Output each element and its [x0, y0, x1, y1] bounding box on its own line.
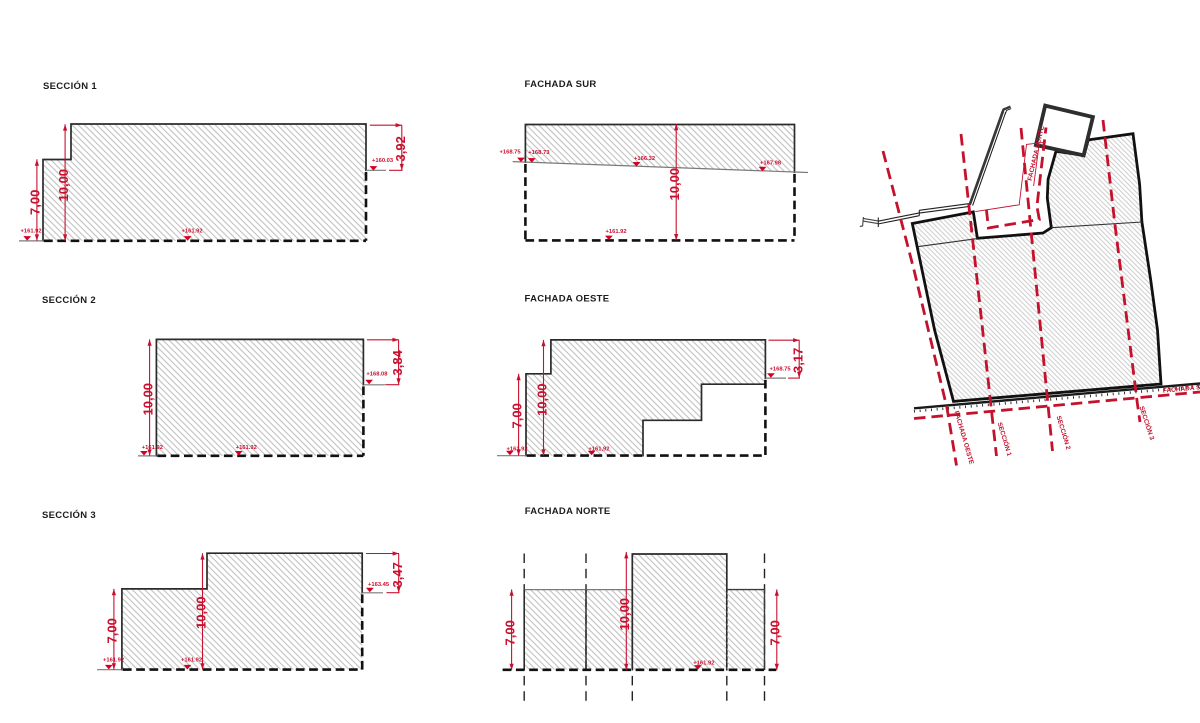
svg-text:3,47: 3,47 — [390, 562, 405, 587]
svg-text:10,00: 10,00 — [56, 169, 71, 202]
svg-text:+168.75: +168.75 — [500, 150, 522, 156]
svg-text:+168.75: +168.75 — [770, 366, 792, 372]
svg-text:+168.73: +168.73 — [528, 150, 550, 156]
svg-text:SECCIÓN 3: SECCIÓN 3 — [42, 509, 96, 521]
svg-text:+161.92: +161.92 — [236, 445, 257, 451]
svg-text:7,00: 7,00 — [28, 190, 43, 215]
svg-text:10,00: 10,00 — [617, 598, 632, 631]
svg-text:10,00: 10,00 — [534, 383, 549, 416]
svg-text:10,00: 10,00 — [667, 168, 682, 201]
svg-text:+161.92: +161.92 — [693, 660, 714, 666]
svg-text:7,00: 7,00 — [502, 620, 517, 645]
svg-text:+161.92: +161.92 — [181, 657, 202, 663]
svg-text:+161.92: +161.92 — [606, 229, 627, 235]
svg-text:3,17: 3,17 — [790, 348, 805, 373]
svg-text:FACHADA OESTE: FACHADA OESTE — [525, 294, 610, 305]
svg-text:+161.92: +161.92 — [182, 228, 203, 234]
svg-text:+161.92: +161.92 — [21, 228, 42, 234]
svg-text:+161.92: +161.92 — [103, 657, 124, 663]
svg-text:SECCIÓN 1: SECCIÓN 1 — [43, 80, 97, 92]
svg-text:7,00: 7,00 — [509, 403, 524, 428]
svg-text:+161.92: +161.92 — [507, 447, 528, 453]
svg-text:10,00: 10,00 — [140, 383, 155, 416]
svg-text:3,84: 3,84 — [390, 349, 405, 375]
svg-text:SECCIÓN 2: SECCIÓN 2 — [42, 294, 96, 306]
svg-text:+160.03: +160.03 — [372, 158, 394, 164]
svg-text:+161.92: +161.92 — [142, 445, 163, 451]
svg-text:7,00: 7,00 — [105, 618, 120, 643]
svg-text:+161,92: +161,92 — [588, 447, 609, 453]
svg-text:3,92: 3,92 — [393, 136, 408, 161]
svg-text:10,00: 10,00 — [193, 596, 208, 629]
svg-text:FACHADA NORTE: FACHADA NORTE — [525, 506, 611, 517]
svg-text:+167.98: +167.98 — [760, 161, 782, 167]
svg-text:+166.32: +166.32 — [634, 156, 655, 162]
svg-text:7,00: 7,00 — [768, 620, 783, 645]
svg-text:+168.08: +168.08 — [366, 372, 388, 378]
svg-text:FACHADA SUR: FACHADA SUR — [525, 79, 597, 90]
svg-text:+163.45: +163.45 — [368, 582, 390, 588]
